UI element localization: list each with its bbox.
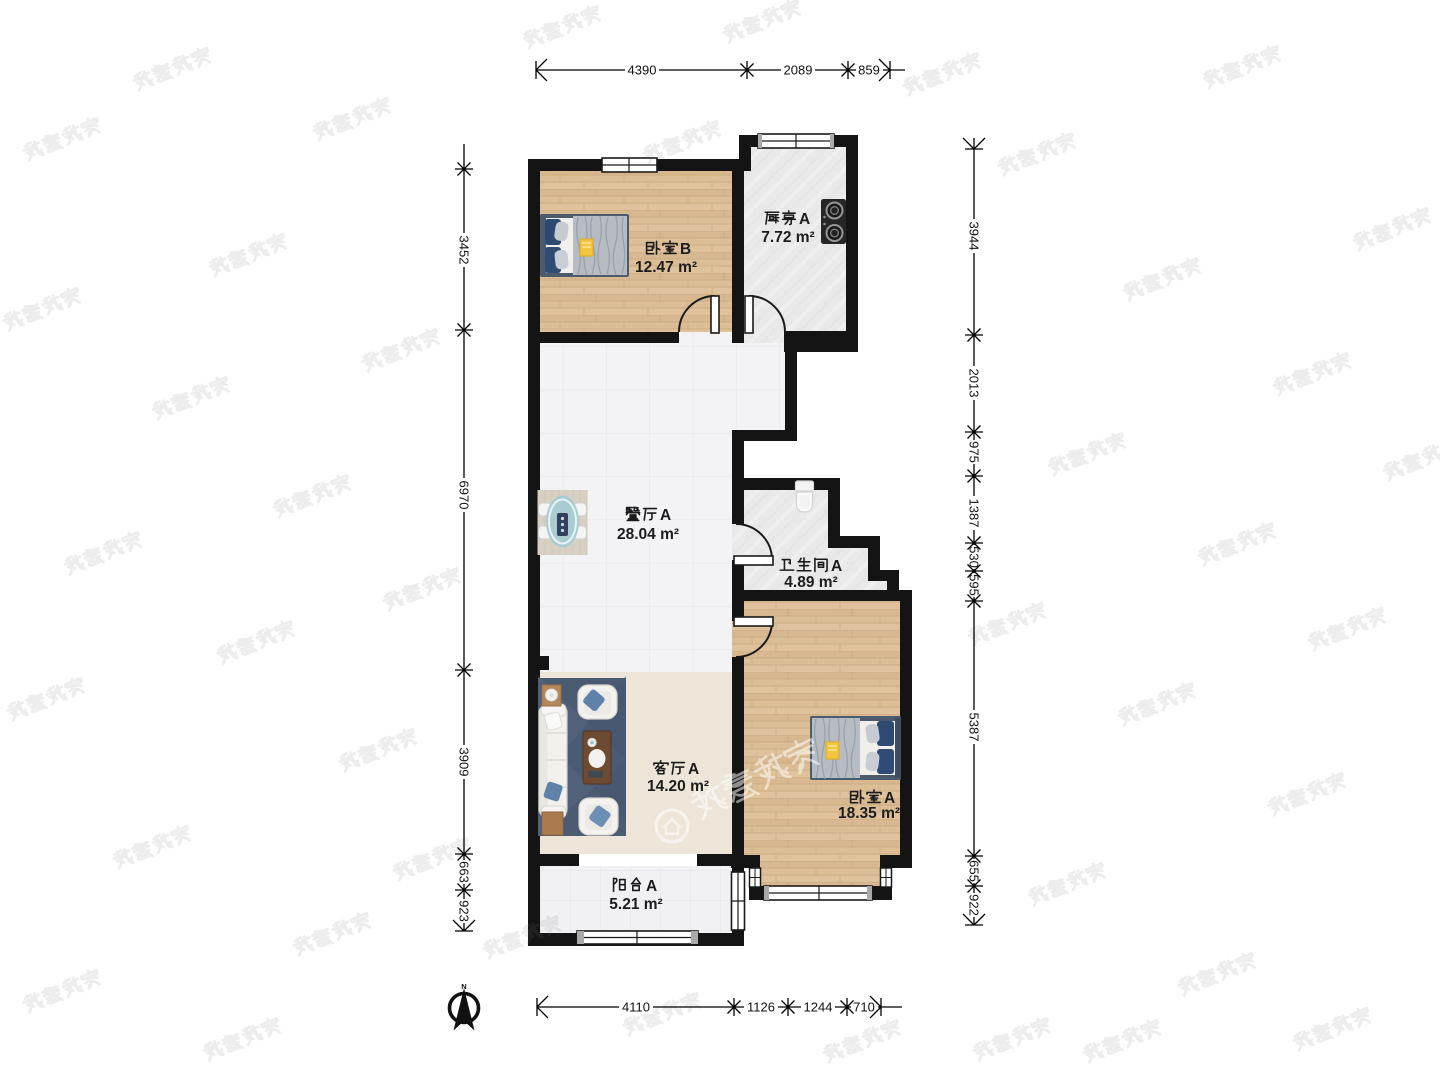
svg-text:4390: 4390 (628, 63, 657, 78)
svg-text:975: 975 (967, 441, 982, 463)
svg-text:2089: 2089 (784, 63, 813, 78)
svg-text:1244: 1244 (804, 1000, 833, 1015)
svg-text:28.04 m²: 28.04 m² (617, 526, 679, 543)
svg-text:5387: 5387 (967, 713, 982, 742)
svg-text:7.72 m²: 7.72 m² (761, 229, 814, 246)
svg-text:N: N (461, 982, 466, 991)
svg-text:5.21 m²: 5.21 m² (609, 896, 662, 913)
svg-text:A: A (688, 761, 699, 778)
svg-text:663: 663 (457, 861, 472, 883)
svg-text:1387: 1387 (967, 499, 982, 528)
svg-text:2013: 2013 (967, 369, 982, 398)
svg-text:14.20 m²: 14.20 m² (647, 778, 709, 795)
svg-text:A: A (646, 878, 657, 895)
svg-text:18.35 m²: 18.35 m² (838, 805, 900, 822)
svg-text:A: A (799, 211, 810, 228)
svg-text:4110: 4110 (622, 1000, 650, 1015)
svg-text:922: 922 (967, 894, 982, 916)
svg-text:655: 655 (967, 860, 982, 882)
svg-text:3944: 3944 (967, 222, 982, 251)
svg-text:3452: 3452 (457, 236, 472, 265)
svg-text:595: 595 (967, 574, 982, 596)
svg-text:A: A (660, 507, 671, 524)
svg-text:12.47 m²: 12.47 m² (635, 259, 697, 276)
svg-text:710: 710 (853, 1000, 875, 1015)
svg-text:6970: 6970 (457, 481, 472, 510)
svg-text:1126: 1126 (747, 1000, 775, 1015)
svg-text:923: 923 (457, 900, 472, 922)
svg-text:B: B (680, 241, 691, 258)
svg-text:A: A (831, 558, 842, 575)
svg-text:530: 530 (967, 546, 982, 568)
svg-text:859: 859 (858, 63, 880, 78)
svg-text:4.89 m²: 4.89 m² (784, 574, 837, 591)
svg-text:3909: 3909 (457, 748, 472, 777)
